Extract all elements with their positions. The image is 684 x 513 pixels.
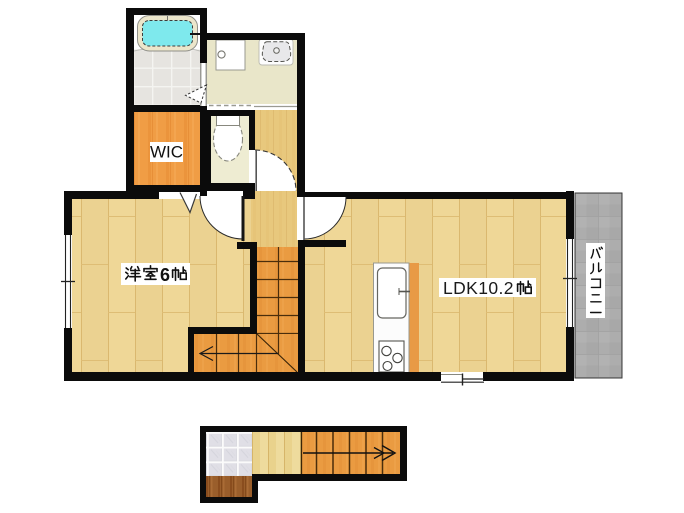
svg-text:LDK10.2: LDK10.2 [443,278,514,298]
svg-text:WIC: WIC [150,143,183,162]
svg-text:6: 6 [160,265,170,285]
